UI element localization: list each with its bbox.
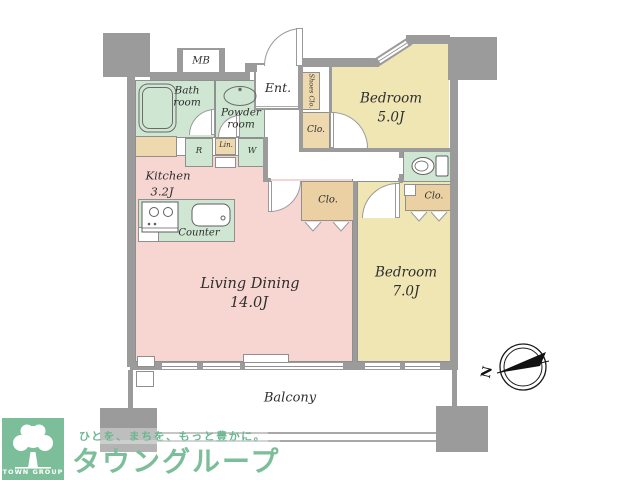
pillar-bottom-left (100, 408, 157, 452)
town-group-logo: TOWN GROUP (2, 418, 64, 480)
meter-box-label: MB (192, 55, 210, 66)
pillar-top-right (448, 37, 497, 80)
powder-room-label: Powder room (213, 107, 269, 131)
compass-icon: N (479, 344, 549, 390)
toilet-room (403, 148, 452, 183)
wall-top-bedroom5 (299, 58, 379, 67)
wall-entrance-column-left (299, 63, 303, 148)
linen-label: Lin. (219, 142, 233, 150)
living-dining-label: Living Dining (200, 276, 299, 292)
bath-room-label: Bath room (164, 85, 210, 109)
bedroom5-size: 5.0J (378, 110, 405, 125)
closet-living-label: Clo. (318, 194, 338, 205)
kitchen-label: Kitchen (146, 170, 191, 183)
balcony-utility-box (136, 371, 154, 387)
counter-notch (138, 227, 159, 242)
entrance-door-leaf (296, 28, 303, 66)
storage-strip (135, 136, 177, 157)
kitchen-size: 3.2J (151, 186, 174, 199)
washer-label: W (248, 147, 257, 157)
bedroom7-window-stile (400, 362, 405, 370)
wall-kitchen-hall (263, 137, 268, 182)
wall-top-bath (150, 72, 245, 80)
wall-top-right (406, 35, 450, 44)
living-dining-size: 14.0J (230, 295, 268, 311)
ld-sliding-pane (243, 354, 289, 363)
town-group-logo-text: TOWN GROUP (2, 468, 64, 476)
entrance-label: Ent. (265, 81, 291, 95)
compass-north-label: N (479, 365, 496, 380)
closet-bedroom7-label: Clo. (425, 192, 444, 203)
closet-duct-box (404, 184, 416, 196)
ld-window-sill (137, 356, 155, 367)
shoes-closet-label: Shoes Clo. (307, 74, 314, 109)
floor-plan: N MB Bath room Powder room Ent. Shoes Cl… (0, 0, 640, 480)
pillar-top-left (103, 33, 150, 77)
wall-left (127, 77, 135, 367)
wall-entrance-left-jog (245, 63, 250, 80)
wall-right (450, 80, 458, 370)
wall-bedroom5-left (329, 63, 332, 114)
tree-icon (2, 418, 64, 480)
wall-balcony-right (452, 370, 457, 408)
counter-label: Counter (178, 227, 219, 238)
wall-balcony-left (128, 370, 133, 408)
bedroom7-door-leaf (395, 183, 400, 218)
linen-lower-box (215, 157, 236, 168)
bedroom7-label: Bedroom (375, 265, 437, 280)
closet-bedroom5-label: Clo. (307, 125, 325, 135)
bedroom5-door-leaf (330, 112, 334, 148)
pillar-bottom-right (436, 406, 488, 452)
bedroom7-size: 7.0J (393, 284, 420, 299)
ld-door-leaf (268, 181, 272, 212)
balcony-railing-top (150, 432, 437, 434)
wall-ld-bedroom7 (353, 181, 357, 362)
toilet-door-opening (399, 158, 403, 174)
wall-below-bedroom5 (299, 148, 452, 152)
ld-window-stile (197, 362, 203, 370)
balcony-railing-bottom (150, 440, 437, 442)
bedroom5-label: Bedroom (360, 91, 422, 106)
ld-window-2 (245, 363, 343, 369)
refrigerator-label: R (196, 147, 202, 157)
balcony-label: Balcony (264, 392, 316, 407)
meter-box-right (219, 50, 225, 72)
